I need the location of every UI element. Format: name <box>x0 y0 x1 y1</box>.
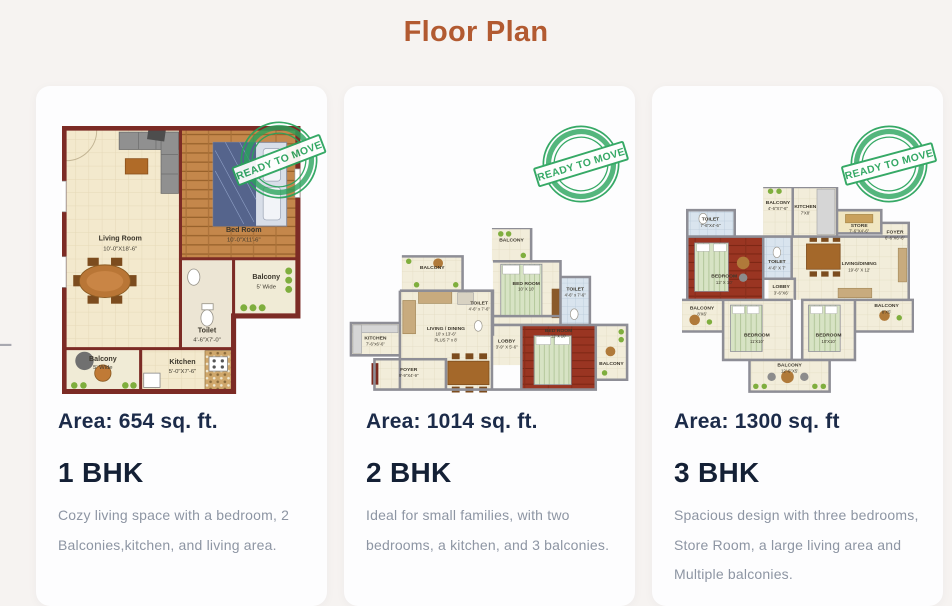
plan-description: Ideal for small families, with two bedro… <box>366 501 613 560</box>
room-dims-kitchen: 5'-0"X7'-6" <box>168 370 195 376</box>
room-dims-bedroom1: 10' X 10' <box>518 286 534 291</box>
bhk-heading: 3 BHK <box>674 457 921 489</box>
room-label-foyer: FOYER <box>886 230 903 236</box>
bhk-heading: 2 BHK <box>366 457 613 489</box>
ready-to-move-stamp: READY TO MOVE <box>849 124 929 204</box>
room-dims-lobby: 3'-6"X6' <box>773 291 788 296</box>
room-label-balcony-upper-left: BALCONY <box>419 265 444 271</box>
page-title: Floor Plan <box>0 16 952 49</box>
room-dims-bedroom1: 12' X 10' <box>715 280 732 285</box>
room-dims-toilet1: 7'-6"X4'-6" <box>700 223 721 228</box>
room-label-kitchen: KITCHEN <box>794 204 816 210</box>
room-label-kitchen: Kitchen <box>169 358 195 366</box>
room-dims-bedroom: 10'-0"X11'-6" <box>226 238 260 244</box>
room-dims-foyer: 6'-6"X6'-6" <box>884 236 905 241</box>
room-dims-toilet: 4'-6"X7'-0" <box>193 338 220 344</box>
room-dims-balcony-bottom: 12'-6"X5' <box>781 369 798 374</box>
area-heading: Area: 1300 sq. ft <box>674 410 921 434</box>
room-label-balcony-bottom: BALCONY <box>777 363 802 369</box>
room-label-bedroom3: BEDROOM <box>815 333 841 339</box>
room-dims-balcony-right: 8'X5' <box>881 310 890 315</box>
room-label-toilet1: TOILET <box>701 217 718 223</box>
floor-plan-image-1bhk: Living Room 10'-0"X18'-6" Bed Room 10'-0… <box>36 102 327 400</box>
floor-plan-carousel: Living Room 10'-0"X18'-6" Bed Room 10'-0… <box>36 86 943 606</box>
room-dims-toilet2: 4'-6" X 7' <box>768 266 785 271</box>
room-label-toilet: Toilet <box>197 327 216 335</box>
room-label-balcony-bottom: Balcony <box>88 355 116 363</box>
room-dims-bedroom3: 10'X10' <box>821 339 835 344</box>
carousel-prev-button[interactable]: ← <box>0 330 13 360</box>
room-label-balcony-left: BALCONY <box>689 306 714 312</box>
floor-plan-drawing-2bhk: BALCONY BALCONY BED ROOM 10' X 10' TOILE… <box>348 228 632 394</box>
room-label-lobby: LOBBY <box>772 285 790 291</box>
floor-plan-image-2bhk: BALCONY BALCONY BED ROOM 10' X 10' TOILE… <box>344 102 635 400</box>
room-dims-balcony-left: 8'X6' <box>697 312 706 317</box>
floor-plan-drawing-3bhk: TOILET 7'-6"X4'-6" BEDROOM 12' X 10' BAL… <box>682 187 914 394</box>
floor-plan-card-3bhk: TOILET 7'-6"X4'-6" BEDROOM 12' X 10' BAL… <box>652 86 943 606</box>
room-dims-kitchen: 7'X8' <box>800 211 809 216</box>
room-label-bedroom: Bed Room <box>225 227 261 235</box>
room-label-toilet2: TOILET <box>768 259 785 265</box>
room-dims-bedroom2: 12' x 10' <box>550 333 566 338</box>
ready-to-move-stamp: READY TO MOVE <box>541 124 621 204</box>
room-label-balcony-top: BALCONY <box>765 200 790 206</box>
room-dims-store: 7'-6"X4'-6" <box>849 229 870 234</box>
plan-description: Spacious design with three bedrooms, Sto… <box>674 501 921 590</box>
room-label-bedroom2: BEDROOM <box>743 333 769 339</box>
room-label-living: LIVING/DINING <box>841 261 876 267</box>
floor-plan-card-2bhk: BALCONY BALCONY BED ROOM 10' X 10' TOILE… <box>344 86 635 606</box>
floor-plan-image-3bhk: TOILET 7'-6"X4'-6" BEDROOM 12' X 10' BAL… <box>652 102 943 400</box>
room-dims-toilet2: 4'-6" x 7'-6" <box>564 292 586 297</box>
room-label-balcony-right: BALCONY <box>874 304 899 310</box>
room-dims-toilet1: 4'-6" x 7'-6" <box>468 306 490 311</box>
room-label-balcony-right: Balcony <box>252 274 280 282</box>
room-dims-balcony-bottom: 5' Wide <box>93 365 113 371</box>
ready-to-move-stamp: READY TO MOVE <box>239 120 319 200</box>
room-dims-balcony-top: 4'-6"X7'-6" <box>767 207 788 212</box>
room-dims-foyer: 9'-9"X4'-9" <box>398 372 418 377</box>
room-dims-lobby: 3'-9" X 5'-6" <box>495 344 517 349</box>
room-dims-balcony-right: 5' Wide <box>256 285 276 291</box>
room-dims-bedroom2: 11'X10' <box>749 339 763 344</box>
room-label-balcony-right: BALCONY <box>599 361 624 367</box>
room-dims-living: 10'-0"X18'-6" <box>103 247 137 253</box>
room-dims2-living: PLUS 7' x 8' <box>434 337 457 342</box>
plan-description: Cozy living space with a bedroom, 2 Balc… <box>58 501 305 560</box>
room-label-balcony-top: BALCONY <box>499 237 524 243</box>
room-dims-kitchen: 7'-6"x6'-6" <box>366 341 385 346</box>
room-dims-living: 10' x 13'-6" <box>435 331 456 336</box>
room-label-living: Living Room <box>98 235 141 243</box>
area-heading: Area: 1014 sq. ft. <box>366 410 613 434</box>
room-label-bedroom1: BEDROOM <box>711 274 737 280</box>
room-dims-living: 19'-6" X 12' <box>848 268 870 273</box>
bhk-heading: 1 BHK <box>58 457 305 489</box>
area-heading: Area: 654 sq. ft. <box>58 410 305 434</box>
floor-plan-card-1bhk: Living Room 10'-0"X18'-6" Bed Room 10'-0… <box>36 86 327 606</box>
